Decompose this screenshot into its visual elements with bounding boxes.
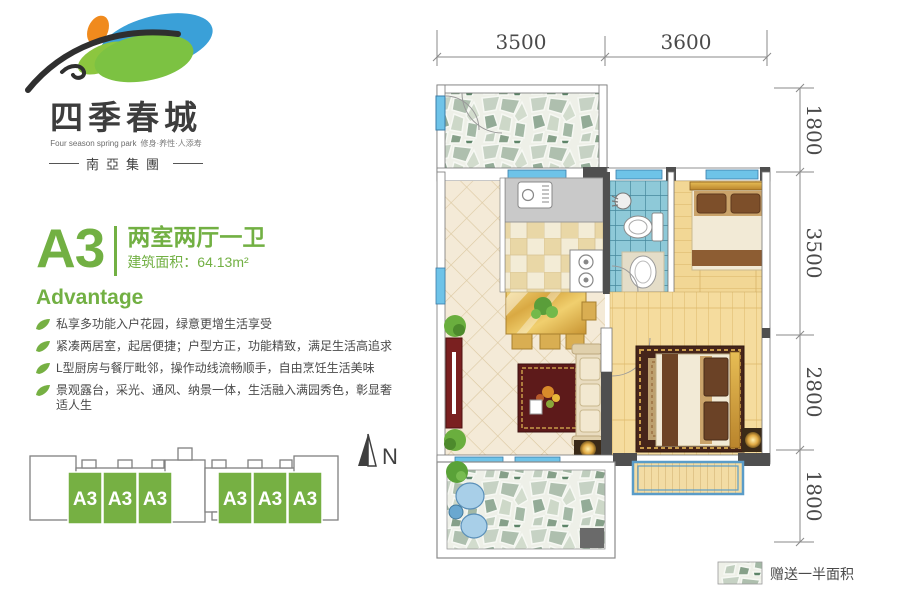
north-arrow-icon [358, 434, 368, 466]
advantage-text: 私享多功能入户花园，绿意更增生活享受 [56, 317, 272, 332]
unit-code: A3 [36, 224, 104, 272]
north-compass: N [350, 430, 400, 474]
bed-2 [690, 182, 764, 270]
unit-texts: 两室两厅一卫 建筑面积：64.13m² [127, 224, 265, 272]
brand-name-en: Four season spring park [50, 139, 136, 148]
legend-swatch [718, 562, 762, 584]
pillow [697, 194, 726, 213]
kitchen [500, 178, 603, 292]
building-keyplan: A3 A3 A3 A3 A3 A3 [22, 438, 347, 550]
advantage-item: 私享多功能入户花园，绿意更增生活享受 [36, 317, 396, 332]
blanket-runner [662, 354, 678, 446]
leaf-bullet-icon [36, 319, 50, 332]
brand-tagline: 修身·养性·人添寿 [140, 139, 201, 148]
wall-chunk [603, 172, 610, 294]
pillow [704, 358, 728, 396]
leaf-bullet-icon [36, 341, 50, 354]
advantage-heading: Advantage [36, 286, 143, 310]
blanket-band [692, 250, 764, 266]
wall-chunk [601, 372, 612, 462]
master-bed [656, 352, 740, 448]
a3-block-label: A3 [293, 489, 317, 510]
right-wall [762, 172, 770, 462]
living-rug [518, 364, 580, 432]
a3-block-label: A3 [108, 489, 132, 510]
sofa [572, 344, 602, 446]
tree-icon [446, 461, 468, 483]
brand-name-cn: 四季春城 [18, 101, 234, 136]
dim-right-1800b: 1800 [802, 471, 826, 522]
entry-garden [436, 85, 607, 172]
dimension-top [433, 30, 771, 66]
a3-block-label: A3 [223, 489, 247, 510]
brand-group: 南亞集團 [86, 154, 166, 173]
dash-right [173, 163, 203, 164]
bay-window [633, 462, 743, 494]
window [616, 170, 662, 179]
terrace [437, 461, 615, 558]
pillow [704, 402, 728, 440]
bedside-lamp [742, 428, 764, 452]
brochure-page: 四季春城 Four season spring park修身·养性·人添寿 南亞… [0, 0, 900, 600]
brand-name-en-row: Four season spring park修身·养性·人添寿 [18, 138, 234, 149]
leaf-bullet-icon [36, 385, 50, 398]
unit-header: A3 两室两厅一卫 建筑面积：64.13m² [36, 224, 265, 276]
window [706, 170, 758, 179]
dim-right-2800: 2800 [802, 367, 826, 418]
dim-right-3500: 3500 [802, 228, 826, 279]
window [436, 268, 445, 304]
a3-block-label: A3 [143, 489, 167, 510]
advantage-text: 景观露台，采光、通风、纳景一体，生活融入满园秀色，彰显奢适人生 [56, 383, 396, 413]
stove [570, 250, 603, 292]
legend-label: 赠送一半面积 [770, 566, 854, 582]
master-bedroom [601, 292, 764, 462]
wall [668, 172, 674, 296]
advantage-item: 紧凑两居室，起居便捷；户型方正，功能精致，满足生活高追求 [36, 339, 396, 354]
advantage-text: 紧凑两居室，起居便捷；户型方正，功能精致，满足生活高追求 [56, 339, 392, 354]
a3-block-label: A3 [258, 489, 282, 510]
advantage-text: L型厨房与餐厅毗邻，操作动线流畅顺手，自由烹饪生活美味 [56, 361, 375, 376]
garden-door [436, 96, 445, 130]
unit-divider [114, 226, 117, 276]
legend: 赠送一半面积 [718, 562, 854, 584]
leaf-bullet-icon [36, 363, 50, 376]
magazine [530, 400, 542, 414]
north-label: N [382, 444, 398, 469]
dim-top-3600: 3600 [661, 30, 712, 54]
dim-top-3500: 3500 [496, 30, 547, 54]
unit-area: 建筑面积：64.13m² [127, 252, 265, 272]
dash-left [49, 163, 79, 164]
dining-table [506, 286, 596, 349]
terrace-pillar [580, 528, 604, 548]
headboard [730, 352, 740, 448]
advantage-item: 景观露台，采光、通风、纳景一体，生活融入满园秀色，彰显奢适人生 [36, 383, 396, 413]
north-arrow-icon [368, 434, 376, 466]
pillow [731, 194, 760, 213]
bathroom [603, 172, 676, 300]
advantage-list: 私享多功能入户花园，绿意更增生活享受 紧凑两居室，起居便捷；户型方正，功能精致，… [36, 317, 396, 420]
a3-block-label: A3 [73, 489, 97, 510]
brand-logo-mark [18, 6, 234, 98]
dim-right-1800a: 1800 [802, 105, 826, 156]
floor-plan: 3500 3600 1800 3500 2800 1800 [420, 0, 900, 600]
headboard [690, 182, 764, 190]
wall [601, 328, 612, 372]
brand-group-row: 南亞集團 [18, 154, 234, 173]
unit-layout: 两室两厅一卫 [127, 225, 265, 250]
advantage-item: L型厨房与餐厅毗邻，操作动线流畅顺手，自由烹饪生活美味 [36, 361, 396, 376]
brand-logo: 四季春城 Four season spring park修身·养性·人添寿 南亞… [18, 6, 234, 178]
